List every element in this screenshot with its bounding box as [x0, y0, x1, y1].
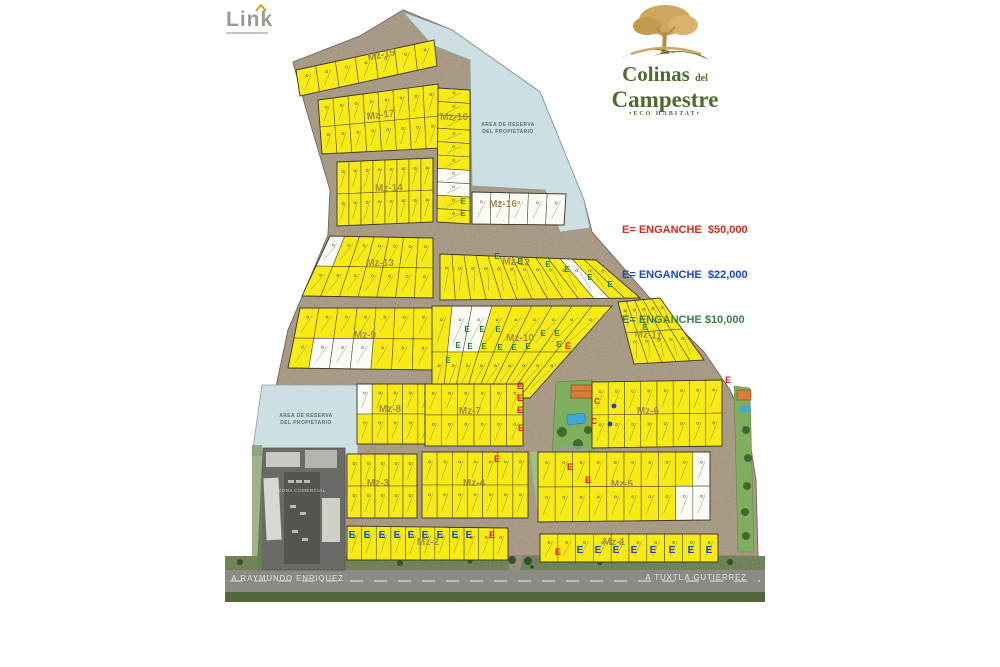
building-roof	[322, 498, 340, 542]
lot	[438, 142, 471, 157]
enganche-e-green: E	[460, 209, 466, 218]
enganche-e-blue: E	[631, 545, 638, 556]
lot	[373, 192, 385, 225]
building-roof	[266, 452, 300, 467]
legend-item-50000: E= ENGANCHE $50,000	[622, 223, 748, 238]
enganche-e-green: E	[511, 343, 517, 352]
lot	[590, 452, 607, 487]
lot	[320, 126, 337, 154]
enganche-e-red: E	[518, 423, 524, 433]
parked-car	[292, 530, 298, 533]
lot	[437, 452, 452, 485]
lot	[538, 487, 555, 522]
swimming-pool	[566, 413, 585, 425]
lot	[413, 308, 433, 339]
lot	[397, 191, 409, 224]
lot	[403, 454, 417, 486]
block-label: Mz-8	[379, 404, 402, 415]
lot	[350, 338, 373, 369]
lower-grass	[225, 592, 765, 602]
link-logo-tagline-bar	[226, 32, 268, 34]
lot	[625, 414, 641, 447]
enganche-e-red: E	[585, 475, 591, 485]
block-mz-4: Mz-4	[422, 452, 528, 518]
enganche-e-red: E	[567, 462, 573, 472]
lot	[337, 194, 349, 227]
lot	[490, 384, 506, 415]
enganche-e-blue: E	[577, 545, 584, 556]
status-dot-blue	[612, 404, 617, 409]
lot	[608, 382, 624, 415]
block-mz-3: Mz-3	[347, 454, 417, 518]
lot	[572, 487, 589, 522]
legend-item-10000: E= ENGANCHE $10,000	[622, 313, 748, 328]
lot	[538, 452, 555, 487]
lot	[361, 486, 375, 518]
lot	[387, 414, 402, 444]
road-label-raymundo-enriquez: A RAYMUNDO ENRIQUEZ	[231, 574, 344, 583]
enganche-e-green: E	[460, 197, 466, 206]
enganche-e-green: E	[479, 325, 485, 334]
block-label: Mz-7	[459, 406, 482, 417]
enganche-e-red: E	[517, 393, 523, 403]
block-mz-5: Mz-5	[538, 452, 710, 522]
enganche-e-blue: E	[394, 530, 401, 541]
tree	[584, 426, 592, 434]
lot	[348, 94, 365, 124]
lot	[706, 413, 722, 446]
lot	[673, 381, 689, 414]
lot	[347, 486, 361, 518]
lot	[373, 308, 395, 339]
lot	[690, 380, 706, 413]
small-pool	[740, 406, 750, 412]
block-mz-6: Mz-6	[592, 380, 722, 448]
lot	[437, 485, 452, 518]
parked-car	[296, 480, 302, 483]
tree	[742, 426, 750, 434]
project-logo-line1: Colinas del	[598, 64, 732, 89]
lot	[467, 485, 482, 518]
parked-car	[302, 538, 308, 541]
lot	[673, 414, 689, 447]
enganche-e-blue: E	[422, 530, 429, 541]
lot	[658, 486, 675, 520]
block-mz-14: Mz-14	[337, 158, 433, 226]
tree	[508, 556, 516, 564]
lot	[389, 454, 403, 486]
enganche-e-green: E	[464, 325, 470, 334]
lot	[372, 414, 387, 444]
reserve-area-2: AREA DE RESERVADEL PROPIETARIO	[252, 385, 358, 455]
enganche-e-green: E	[587, 273, 593, 282]
lot	[396, 267, 417, 297]
project-logo-line2: Campestre	[598, 89, 732, 110]
lot	[657, 381, 673, 414]
lot	[361, 161, 373, 194]
tree	[397, 560, 403, 566]
lot	[347, 454, 361, 486]
lot	[421, 190, 433, 223]
enganche-e-red: E	[517, 381, 523, 391]
lot	[693, 486, 710, 520]
lot	[409, 159, 421, 192]
lot	[392, 339, 414, 370]
lot	[641, 486, 658, 521]
commercial-side-grass	[252, 445, 262, 570]
enganche-e-green: E	[455, 341, 461, 350]
lot	[385, 192, 397, 225]
block-label: Mz-16	[440, 112, 468, 123]
road-label-tuxtla-gutierrez: A TUXTLA GUTIERREZ	[645, 573, 747, 582]
enganche-e-blue: E	[595, 545, 602, 556]
legend-item-22000: E= ENGANCHE $22,000	[622, 268, 748, 283]
enganche-e-red: E	[517, 405, 523, 415]
lot	[513, 452, 528, 485]
tree	[744, 454, 752, 462]
enganche-e-blue: E	[706, 545, 713, 556]
block-label: Mz-13	[366, 258, 394, 269]
block-mz-9: Mz-9	[288, 308, 433, 370]
lot	[441, 415, 457, 446]
lot	[527, 193, 547, 225]
enganche-e-blue: E	[379, 530, 386, 541]
lot	[438, 88, 470, 103]
lot	[409, 191, 421, 224]
lot	[395, 119, 412, 151]
status-c-red: C	[591, 417, 597, 426]
reserve-label: AREA DE RESERVA	[279, 413, 332, 419]
status-c-red: C	[594, 397, 600, 406]
block-label: Mz-14	[375, 183, 404, 195]
enganche-e-blue: E	[613, 545, 620, 556]
lot	[425, 384, 441, 415]
lot	[422, 452, 437, 485]
lot	[425, 415, 441, 446]
enganche-e-green: E	[607, 280, 613, 289]
enganche-e-green: E	[517, 257, 523, 266]
enganche-e-blue: E	[408, 530, 415, 541]
parked-car	[290, 505, 296, 508]
clubhouse-roof	[571, 385, 592, 398]
enganche-e-red: E	[565, 341, 571, 351]
lot	[641, 452, 658, 486]
lot	[437, 168, 470, 183]
amenity-area	[552, 380, 594, 458]
lot	[349, 161, 361, 194]
lot	[624, 486, 641, 521]
lot	[335, 57, 358, 87]
lot	[395, 44, 418, 74]
status-dot-blue	[608, 422, 613, 427]
lot	[658, 452, 675, 486]
lot	[423, 84, 440, 117]
reserve-label: AREA DE RESERVA	[481, 122, 534, 128]
link-logo-text: Link	[226, 10, 296, 30]
tree	[524, 557, 532, 565]
lot	[350, 123, 367, 153]
tree	[741, 508, 749, 516]
lot	[416, 238, 433, 268]
tree	[743, 482, 751, 490]
lot	[437, 155, 470, 170]
enganche-e-green: E	[545, 260, 551, 269]
lot	[590, 487, 607, 522]
building-roof	[305, 450, 337, 468]
lot	[641, 414, 657, 447]
parked-car	[300, 512, 306, 515]
enganche-e-blue: E	[650, 545, 657, 556]
block-label: Mz-4	[463, 478, 486, 489]
lot	[437, 182, 470, 197]
enganche-e-green: E	[497, 343, 503, 352]
parking-lot	[284, 472, 320, 564]
lot	[393, 308, 414, 339]
enganche-e-red: E	[725, 375, 731, 385]
enganche-e-blue: E	[364, 530, 371, 541]
price-legend: E= ENGANCHE $50,000 E= ENGANCHE $22,000 …	[622, 193, 748, 358]
lot	[452, 485, 467, 518]
house-roof	[737, 390, 751, 400]
lot	[375, 486, 389, 518]
reserve-label: DEL PROPIETARIO	[482, 129, 533, 135]
person-dot	[530, 565, 533, 568]
block-label: Mz-3	[367, 478, 390, 489]
block-label: Mz-5	[611, 479, 634, 490]
block-mz-7: Mz-7	[425, 384, 523, 446]
lot	[607, 487, 624, 522]
block-label: Mz-9	[354, 330, 377, 341]
block-label: Mz-12	[502, 256, 531, 268]
parked-car	[304, 480, 310, 483]
enganche-e-blue: E	[452, 530, 459, 541]
enganche-e-blue: E	[688, 545, 695, 556]
lot	[422, 485, 437, 518]
lot	[490, 415, 506, 446]
lot	[337, 162, 349, 195]
lot	[371, 339, 393, 370]
lot	[693, 452, 710, 486]
lot	[706, 380, 722, 413]
lot	[412, 339, 433, 370]
lot	[318, 98, 335, 127]
enganche-e-green: E	[540, 329, 546, 338]
lot	[403, 486, 417, 518]
block-mz-13: Mz-13	[302, 236, 433, 298]
enganche-e-green: E	[445, 356, 451, 365]
lot	[357, 384, 372, 414]
tree	[742, 532, 750, 540]
house-roof-icon	[255, 4, 267, 12]
lot	[555, 487, 572, 522]
project-logo: Colinas del Campestre •ECO HABITAT•	[598, 2, 732, 117]
enganche-e-green: E	[556, 340, 562, 349]
lot	[493, 528, 508, 560]
block-label: Mz-16	[489, 199, 517, 210]
lot	[335, 124, 352, 153]
lot	[474, 415, 490, 446]
enganche-e-red: E	[555, 547, 561, 557]
lot	[657, 414, 673, 447]
tree-logo-icon	[617, 2, 713, 64]
lot	[441, 384, 457, 415]
lot	[403, 414, 418, 444]
flyer-root: AREA DE RESERVADEL PROPIETARIOAREA DE RE…	[0, 0, 1000, 667]
block-mz-16: Mz-16	[472, 192, 566, 225]
lot	[676, 486, 693, 520]
lot	[498, 485, 513, 518]
tree	[237, 559, 243, 565]
enganche-e-blue: E	[437, 530, 444, 541]
lot	[333, 96, 350, 126]
lot	[403, 384, 418, 414]
lot	[421, 158, 433, 191]
lot	[690, 413, 706, 446]
lot	[380, 120, 397, 151]
lot	[408, 86, 425, 119]
commercial-label: ZONA COMERCIAL	[278, 488, 325, 493]
lot	[438, 128, 470, 143]
enganche-e-blue: E	[669, 545, 676, 556]
commercial-zone: ZONA COMERCIAL	[252, 445, 345, 570]
lot	[472, 192, 491, 224]
lot	[389, 486, 403, 518]
enganche-e-red: E	[489, 530, 495, 540]
enganche-e-green: E	[494, 252, 500, 261]
lot	[676, 452, 693, 486]
enganche-e-green: E	[467, 342, 473, 351]
lot	[357, 414, 372, 444]
enganche-e-green: E	[495, 325, 501, 334]
reserve-label: DEL PROPIETARIO	[280, 420, 331, 426]
enganche-e-blue: E	[349, 530, 356, 541]
lot	[483, 485, 498, 518]
enganche-e-green: E	[554, 329, 560, 338]
enganche-e-blue: E	[466, 530, 473, 541]
parked-car	[288, 480, 294, 483]
block-mz-8: Mz-8	[357, 384, 433, 444]
lot	[414, 40, 437, 70]
tree	[557, 427, 567, 437]
lot	[414, 268, 433, 298]
lot	[608, 415, 624, 448]
lot	[349, 193, 361, 226]
lot	[513, 485, 528, 518]
lot	[361, 193, 373, 226]
link-logo: Link	[226, 10, 296, 34]
enganche-e-green: E	[481, 342, 487, 351]
tree	[727, 559, 733, 565]
enganche-e-red: E	[494, 454, 500, 464]
lot	[316, 61, 339, 91]
enganche-e-green: E	[525, 342, 531, 351]
lot	[329, 338, 353, 369]
lot	[458, 415, 474, 446]
enganche-e-green: E	[564, 265, 570, 274]
lot	[410, 117, 427, 149]
block-label: Mz-6	[637, 406, 660, 417]
lot	[546, 194, 566, 225]
lot	[393, 88, 410, 120]
lot	[365, 122, 382, 152]
site-map: AREA DE RESERVADEL PROPIETARIOAREA DE RE…	[0, 0, 1000, 667]
